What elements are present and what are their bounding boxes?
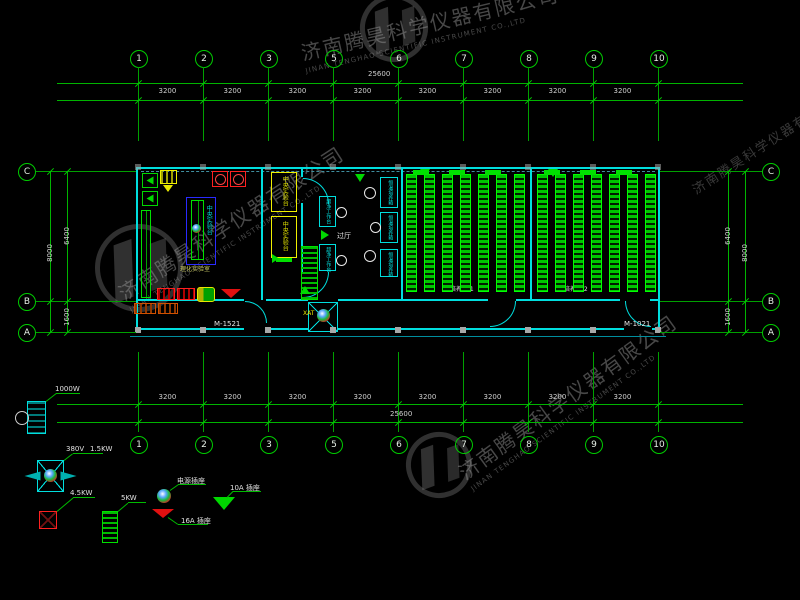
- grid-bubble-bottom: 7: [455, 436, 473, 454]
- legend-socket10-symbol: [213, 497, 235, 510]
- plinth-line: [130, 336, 666, 337]
- total-dim-bottom: 25600: [390, 410, 412, 418]
- stool: [370, 222, 381, 233]
- leader-line: [46, 393, 57, 402]
- culture-rack: [496, 174, 507, 292]
- wall-bottom: [136, 328, 244, 330]
- wall-bottom: [338, 328, 624, 330]
- clean-bench-label: 超净工作台: [325, 247, 330, 272]
- culture-rack: [478, 174, 489, 292]
- leader-line: [57, 498, 74, 512]
- power-sphere: [44, 469, 57, 482]
- wall-partition: [261, 167, 263, 300]
- bay-dim-bottom: 3200: [614, 393, 632, 401]
- incubator: 恒温培养箱: [380, 212, 398, 243]
- culture-rack: [627, 174, 638, 292]
- door-label-left: M-1521: [214, 320, 240, 328]
- legend-rack: [102, 511, 118, 543]
- watermark: 济南腾昊科学仪器有限公司: [688, 84, 800, 198]
- column-marker: [265, 327, 271, 333]
- legend-socket16-symbol: [152, 509, 174, 518]
- right-dim-lower: 1600: [724, 300, 732, 334]
- dim-line: [57, 100, 743, 101]
- grid-bubble-right: A: [762, 324, 780, 342]
- dim-line: [57, 83, 743, 84]
- stool: [364, 250, 376, 262]
- wall-partition: [530, 167, 532, 300]
- bay-dim-bottom: 3200: [289, 393, 307, 401]
- power-sphere: [192, 224, 201, 233]
- grid-bubble-bottom: 9: [585, 436, 603, 454]
- grid-line-vertical: [463, 67, 464, 141]
- bay-dim-top: 3200: [224, 87, 242, 95]
- bay-dim-bottom: 3200: [354, 393, 372, 401]
- radiator: [177, 288, 195, 300]
- culture-rack: [555, 174, 566, 292]
- grid-bubble-top: 1: [130, 50, 148, 68]
- rack-connector: [544, 170, 560, 175]
- bay-dim-bottom: 3200: [484, 393, 502, 401]
- clean-bench: 超净工作台: [319, 244, 336, 271]
- column-marker: [525, 164, 531, 170]
- grid-bubble-top: 5: [325, 50, 343, 68]
- fume-device: [160, 170, 177, 184]
- leader-line: [64, 453, 73, 461]
- culture-rack: [609, 174, 620, 292]
- central-bench-yellow: 中央实验台: [271, 216, 297, 258]
- dim-line: [57, 404, 743, 405]
- bay-dim-top: 3200: [289, 87, 307, 95]
- grid-line-vertical: [528, 67, 529, 141]
- column-marker: [200, 164, 206, 170]
- grid-bubble-left: A: [18, 324, 36, 342]
- legend-socket16-label: 16A 插座: [181, 516, 211, 526]
- hall-label: 过厅: [337, 231, 351, 241]
- bay-dim-top: 3200: [484, 87, 502, 95]
- legend-rack-power: 5KW: [121, 494, 137, 502]
- grid-line-horizontal: [660, 171, 762, 172]
- column-marker: [395, 327, 401, 333]
- wall-corridor: [516, 299, 620, 301]
- incubator-label: 恒温培养箱: [387, 252, 392, 277]
- grid-bubble-top: 3: [260, 50, 278, 68]
- central-bench-yellow: 中央实验台: [271, 172, 297, 212]
- grid-line-vertical: [658, 67, 659, 141]
- column-marker: [135, 164, 141, 170]
- grid-bubble-top: 9: [585, 50, 603, 68]
- grid-line-vertical: [593, 67, 594, 141]
- grid-bubble-right: C: [762, 163, 780, 181]
- bay-dim-bottom: 3200: [549, 393, 567, 401]
- right-dim-upper: 6400: [724, 219, 732, 253]
- room-label-left: 理化实验室: [180, 264, 210, 273]
- column-marker: [590, 327, 596, 333]
- right-dim-total: 8000: [741, 236, 749, 270]
- grid-bubble-bottom: 1: [130, 436, 148, 454]
- grid-bubble-top: 7: [455, 50, 473, 68]
- rack-connector: [580, 170, 596, 175]
- hood-circle: [233, 174, 244, 185]
- left-dim-upper: 6400: [63, 219, 71, 253]
- culture-rack: [442, 174, 453, 292]
- grid-bubble-bottom: 6: [390, 436, 408, 454]
- grid-bubble-right: B: [762, 293, 780, 311]
- watermark-company-cn: 济南腾昊科学仪器有限公司: [688, 84, 800, 198]
- culture-rack: [591, 174, 602, 292]
- grid-line-vertical: [333, 67, 334, 141]
- culture-rack: [460, 174, 471, 292]
- legend-hood-power: 4.5KW: [70, 489, 92, 497]
- radiator: [158, 303, 178, 314]
- legend-dryer-knob: [15, 411, 29, 425]
- column-marker: [330, 327, 336, 333]
- legend-socket-sphere: [157, 489, 171, 503]
- central-bench-label: 中央实验台: [281, 176, 287, 206]
- legend-hood: [39, 511, 57, 529]
- clean-bench: 超净工作台: [319, 196, 336, 227]
- leader-line: [128, 502, 146, 503]
- hood-circle: [215, 174, 226, 185]
- column-marker: [200, 327, 206, 333]
- cad-floor-plan: 济南腾昊科学仪器有限公司 JINAN TENGHAO SCIENTIFIC IN…: [0, 0, 800, 600]
- legend-voltage: 380V: [66, 445, 84, 453]
- wall-partition: [301, 167, 303, 177]
- grid-line-vertical: [268, 67, 269, 141]
- column-marker: [655, 164, 661, 170]
- grid-line-horizontal: [660, 301, 762, 302]
- grid-line-horizontal: [660, 332, 762, 333]
- culture-rack: [573, 174, 584, 292]
- culture-rack: [424, 174, 435, 292]
- central-bench-label: 中央实验台: [205, 205, 211, 235]
- bay-dim-top: 3200: [354, 87, 372, 95]
- column-marker: [525, 327, 531, 333]
- incubator: 恒温培养箱: [380, 177, 398, 208]
- grid-bubble-left: C: [18, 163, 36, 181]
- legend-motor-wing: [61, 472, 77, 481]
- culture-rack: [406, 174, 417, 292]
- stool: [336, 207, 347, 218]
- wall-bottom: [266, 328, 308, 330]
- leader-line: [73, 497, 95, 498]
- radiator: [157, 288, 175, 300]
- incubator-label: 恒温培养箱: [387, 180, 392, 205]
- grid-bubble-bottom: 8: [520, 436, 538, 454]
- equipment: [197, 287, 215, 302]
- column-marker: [395, 164, 401, 170]
- grid-bubble-bottom: 10: [650, 436, 668, 454]
- bay-dim-top: 3200: [159, 87, 177, 95]
- incubator-label: 恒温培养箱: [387, 215, 392, 240]
- bay-dim-bottom: 3200: [159, 393, 177, 401]
- radiator: [134, 303, 156, 314]
- door-label-right: M-1021: [624, 320, 650, 328]
- wall-corridor: [338, 299, 488, 301]
- legend-motor-power: 1.5KW: [90, 445, 112, 453]
- bay-dim-bottom: 3200: [224, 393, 242, 401]
- legend-socket-label: 电源插座: [177, 476, 205, 486]
- wall-bench: [141, 210, 151, 298]
- grid-line-vertical: [203, 67, 204, 141]
- watermark-company-en: JINAN TENGHAO SCIENTIFIC INSTRUMENT CO.,…: [470, 331, 688, 493]
- legend-socket10-label: 10A 插座: [230, 483, 260, 493]
- dim-line: [57, 422, 743, 423]
- clean-bench-label: 超净工作台: [325, 199, 330, 224]
- legend-dryer: [27, 401, 46, 434]
- legend-motor-wing: [25, 472, 41, 481]
- power-sphere: [317, 309, 330, 322]
- legend-dryer-power: 1000W: [55, 385, 80, 393]
- bay-dim-top: 3200: [419, 87, 437, 95]
- culture-rack: [514, 174, 525, 292]
- grid-bubble-top: 6: [390, 50, 408, 68]
- grid-bubble-left: B: [18, 293, 36, 311]
- leader-line: [168, 517, 178, 525]
- column-marker: [330, 164, 336, 170]
- grid-bubble-top: 8: [520, 50, 538, 68]
- leader-line: [56, 393, 80, 394]
- total-dim-top: 25600: [368, 70, 390, 78]
- rack-connector: [485, 170, 501, 175]
- culture-rack: [645, 174, 656, 292]
- rack-connector: [449, 170, 465, 175]
- bay-dim-top: 3200: [614, 87, 632, 95]
- entrance-label: XAT: [303, 310, 314, 317]
- incubator: 恒温培养箱: [380, 249, 398, 277]
- grid-bubble-bottom: 5: [325, 436, 343, 454]
- grid-bubble-bottom: 2: [195, 436, 213, 454]
- leader-line: [73, 453, 103, 454]
- grid-bubble-top: 2: [195, 50, 213, 68]
- wall-corridor: [650, 299, 660, 301]
- central-bench-label: 中央实验台: [281, 221, 287, 251]
- stool: [364, 187, 376, 199]
- wall-partition: [401, 167, 403, 300]
- grid-bubble-bottom: 3: [260, 436, 278, 454]
- rack-connector: [413, 170, 429, 175]
- rack-connector: [616, 170, 632, 175]
- culture-rack: [537, 174, 548, 292]
- grid-line-vertical: [398, 67, 399, 141]
- leader-line: [118, 503, 129, 512]
- grid-bubble-top: 10: [650, 50, 668, 68]
- bay-dim-bottom: 3200: [419, 393, 437, 401]
- left-dim-lower: 1600: [63, 300, 71, 334]
- column-marker: [265, 164, 271, 170]
- grid-line-vertical: [138, 67, 139, 141]
- left-dim-total: 8000: [46, 236, 54, 270]
- stool: [336, 255, 347, 266]
- column-marker: [460, 327, 466, 333]
- bay-dim-top: 3200: [549, 87, 567, 95]
